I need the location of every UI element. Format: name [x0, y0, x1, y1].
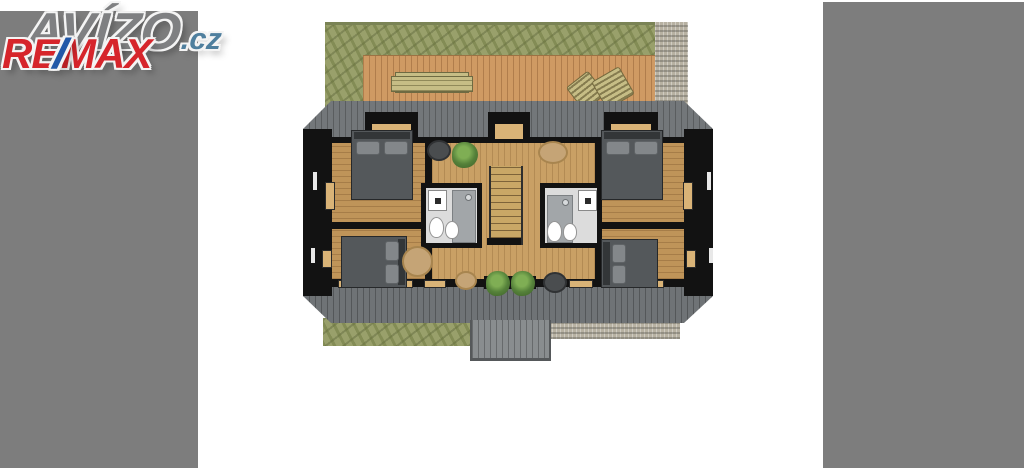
window-gable-right-1 [683, 182, 693, 210]
staircase [489, 166, 523, 245]
listing-image: AVÍZO.cz RE/MAX [0, 0, 1024, 468]
gable-left-window-slit-2 [311, 248, 315, 263]
gable-right-window-slit-2 [709, 248, 713, 263]
gable-left [303, 129, 332, 296]
window-bottom-3 [424, 280, 446, 288]
bed-top-right [601, 130, 663, 200]
gable-right [684, 129, 713, 296]
toilet-left-2 [445, 221, 459, 239]
dormer-center-sill [495, 124, 523, 139]
rug-hall-top-right [538, 141, 568, 164]
sink-left [428, 190, 447, 211]
remax-max: MAX [61, 30, 151, 77]
staircase-base [487, 238, 521, 245]
terrace-bench [395, 72, 469, 93]
pouf-bottom-left [455, 271, 477, 290]
wall-right-divider [595, 222, 684, 229]
gable-left-window-slit-1 [313, 172, 317, 190]
remax-re: RE [2, 30, 58, 77]
bed-top-left [351, 130, 413, 200]
sink-right [578, 190, 597, 211]
floor-plan-photo [0, 0, 1024, 468]
bed-bottom-right [601, 239, 658, 288]
avizo-cz-suffix: .cz [180, 25, 223, 55]
window-gable-right-2 [686, 250, 696, 268]
rug-bottom-left-room [402, 246, 433, 277]
bed-bottom-left [341, 236, 407, 288]
toilet-right-1 [547, 221, 562, 242]
stool-top-left [427, 140, 451, 161]
rear-dormer [470, 320, 551, 361]
gravel-path-top [655, 22, 688, 107]
window-gable-left-1 [325, 182, 335, 210]
bench-seat [391, 76, 473, 92]
bathroom-right [540, 183, 602, 248]
toilet-left-1 [429, 217, 444, 238]
toilet-right-2 [563, 223, 577, 241]
dormer-window-center [488, 112, 530, 143]
window-gable-left-2 [322, 250, 332, 268]
wall-left-divider [332, 222, 425, 229]
remax-logo: RE/MAX [2, 33, 151, 75]
stool-bottom-right [543, 272, 567, 293]
bathroom-left [421, 183, 482, 248]
remax-slash: / [53, 33, 66, 75]
gable-right-window-slit-1 [707, 172, 711, 190]
window-bottom-4 [569, 280, 593, 288]
